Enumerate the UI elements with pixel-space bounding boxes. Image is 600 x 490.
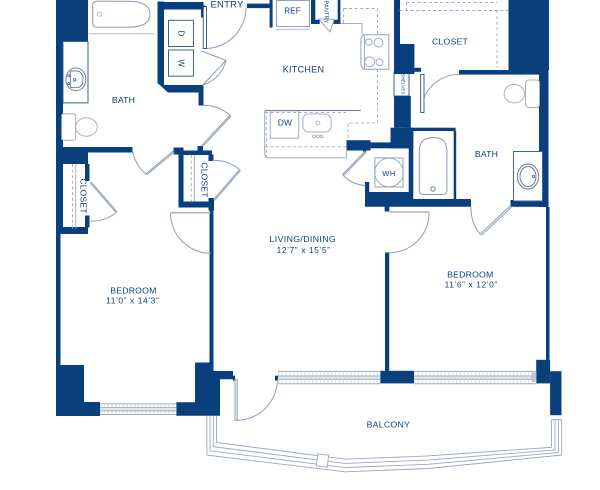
svg-text:W: W	[176, 59, 185, 67]
svg-text:CLOSET: CLOSET	[200, 162, 210, 197]
svg-text:BEDROOM: BEDROOM	[110, 286, 156, 296]
svg-text:CLOSET: CLOSET	[432, 36, 468, 46]
svg-text:CLOSET: CLOSET	[79, 178, 89, 213]
svg-text:PANTRY: PANTRY	[323, 0, 329, 23]
svg-text:REF: REF	[284, 7, 301, 16]
svg-text:SHELVES: SHELVES	[401, 73, 406, 94]
svg-text:KITCHEN: KITCHEN	[283, 65, 325, 75]
svg-text:BATH: BATH	[112, 95, 135, 105]
svg-text:12’7” x 15’5”: 12’7” x 15’5”	[277, 245, 331, 255]
svg-text:WH: WH	[382, 169, 396, 178]
svg-text:BATH: BATH	[475, 149, 498, 159]
svg-text:DW: DW	[278, 117, 293, 127]
svg-text:D: D	[176, 31, 185, 37]
svg-text:BEDROOM: BEDROOM	[447, 270, 493, 280]
svg-text:BALCONY: BALCONY	[367, 419, 411, 429]
svg-text:11’6” x 12’0”: 11’6” x 12’0”	[445, 280, 498, 290]
svg-text:11’0” x 14’3”: 11’0” x 14’3”	[106, 296, 159, 306]
svg-text:LIVING/DINING: LIVING/DINING	[270, 234, 337, 244]
svg-text:ENTRY: ENTRY	[210, 0, 243, 11]
